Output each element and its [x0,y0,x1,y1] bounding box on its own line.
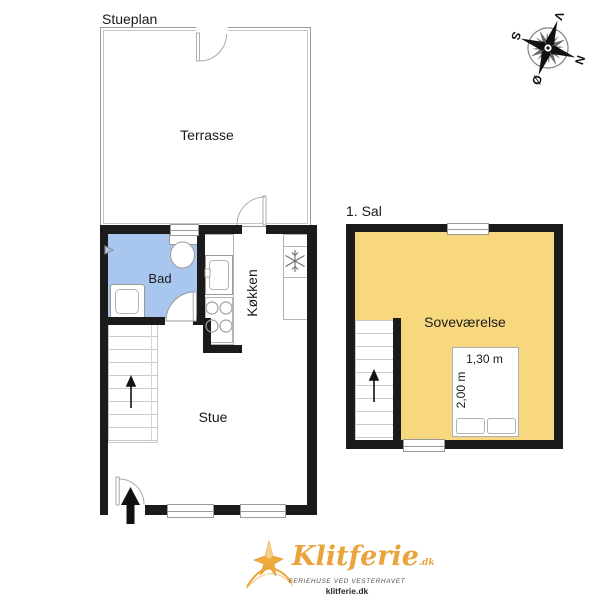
ground-floor-title: Stueplan [102,11,222,27]
wall-bathroom-right [197,225,205,325]
kitchen-label: Køkken [244,258,260,328]
logo-website: klitferie.dk [272,586,422,596]
wall-first-top-2 [487,224,555,232]
logo-tagline: FERIEHUSE VED VESTERHAVET [272,578,422,585]
compass-label-west: V [551,10,567,22]
compass-rose-icon: N V S Ø [502,2,594,94]
wall-first-bottom-1 [346,440,403,449]
entrance-arrow-icon [121,487,140,524]
bathroom-label: Bad [130,271,190,286]
stairs-first [355,320,395,442]
door-arc [119,479,144,504]
stairs-ground [108,323,158,443]
sink-basin [209,260,229,290]
logo-brand: Klitferie.dk [292,541,435,572]
compass-label-south: S [508,30,524,42]
pillow [487,418,516,434]
wall-first-top-1 [346,224,447,232]
terrace-label: Terrasse [176,127,238,143]
wall-kitchen-horizontal [203,345,242,353]
wall-ground-top-1 [100,225,170,234]
window [403,439,445,452]
window [240,504,286,518]
bedroom-label: Soveværelse [400,314,530,330]
bed-length-label: 2,00 m [454,362,468,418]
fridge-icon [283,246,309,278]
wall-ground-right [307,225,317,515]
washbasin-inner [115,289,139,314]
pillow [456,418,485,434]
logo-brand-suffix: .dk [419,558,435,568]
compass-label-north: N [572,54,588,67]
wall-ground-bottom-2 [212,505,240,515]
wall-ground-top-3 [266,225,317,234]
wall-first-stairs [393,318,401,440]
compass-label-east: Ø [529,73,545,86]
floorplan-canvas: Stueplan 1. Sal Terrasse 1,30 [0,0,600,600]
wall-ground-bottom-3 [284,505,317,515]
wall-first-bottom-2 [443,440,563,449]
wall-ground-bottom-1 [145,505,167,515]
window [167,504,214,518]
wall-first-right [554,224,563,449]
window [447,223,489,235]
window [170,224,199,236]
wall-ground-left [100,225,108,515]
livingroom-label: Stue [183,409,243,425]
wall-bathroom-bottom [100,317,165,325]
door-leaf [116,477,119,505]
wall-first-left [346,224,355,449]
first-floor-title: 1. Sal [346,203,466,219]
